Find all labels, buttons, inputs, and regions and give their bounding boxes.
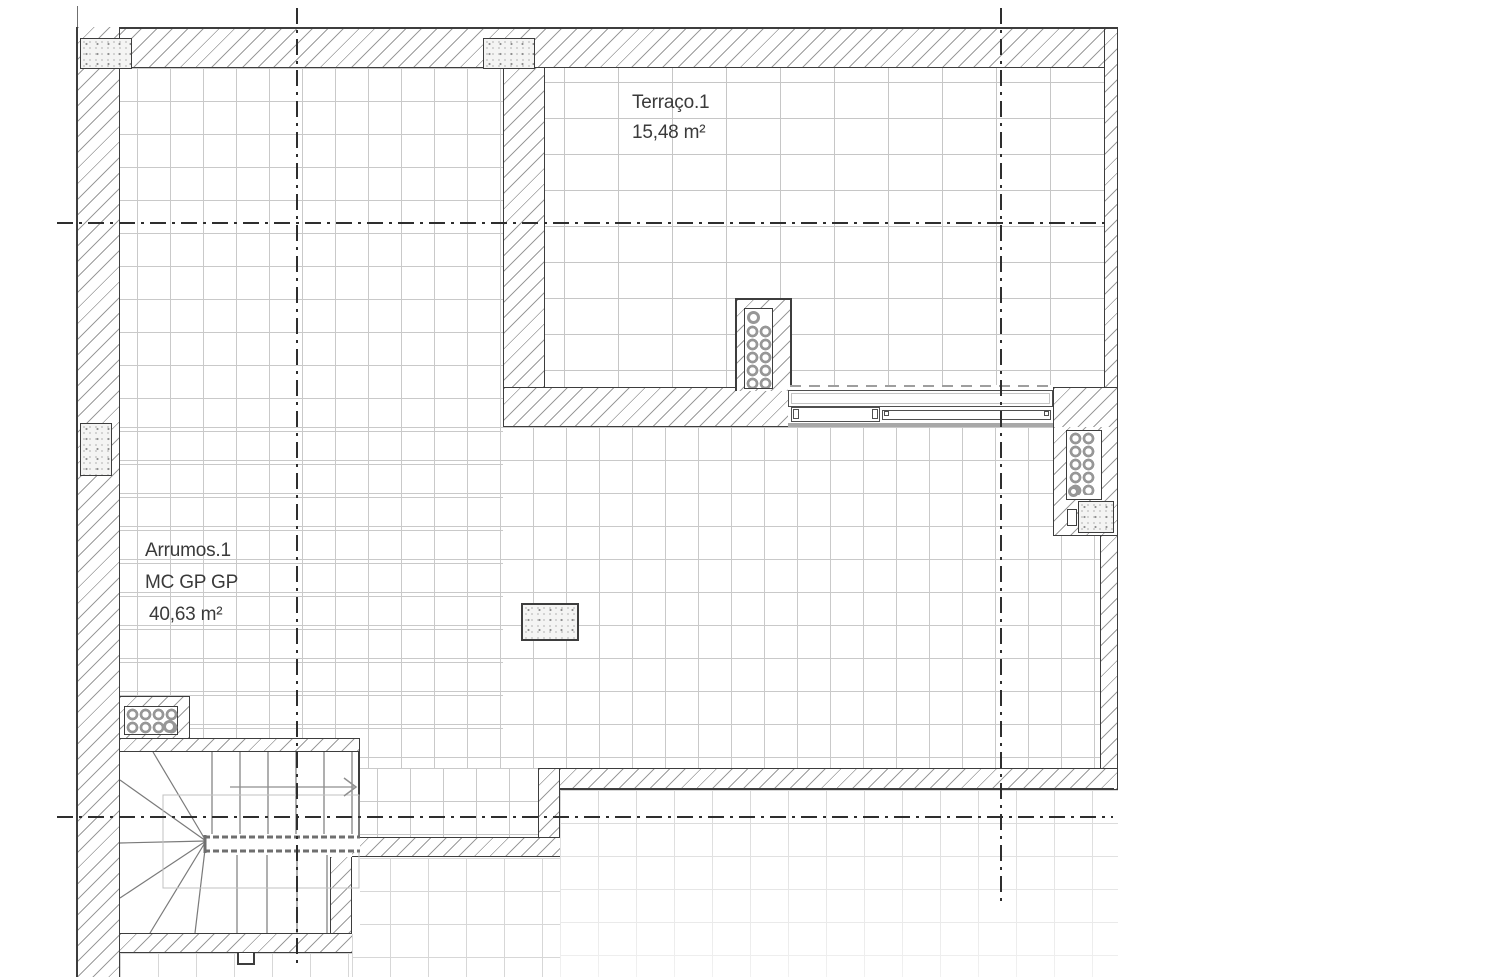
sliding-door-frame xyxy=(788,390,1053,407)
pier-left-wall xyxy=(80,423,112,476)
roof-tiles-fade-overlay xyxy=(560,790,1118,977)
roof-tiles-below-stairs-right xyxy=(352,858,560,977)
wall-right-upper xyxy=(1104,29,1118,387)
pillar-free-standing xyxy=(521,603,579,641)
room-label-terraco-area: 15,48 m² xyxy=(632,122,705,144)
centerline-vertical-2 xyxy=(1000,8,1002,905)
wall-top xyxy=(76,27,1118,68)
wall-right-lower xyxy=(1100,536,1118,768)
wall-band-bottom-edge-line xyxy=(560,788,1114,790)
pier-top-middle xyxy=(483,38,535,69)
wall-stair-top xyxy=(120,738,360,752)
sliding-door-dashed-line xyxy=(790,385,1051,387)
wall-band-south-lower xyxy=(352,837,560,857)
section-tick-line xyxy=(77,6,78,27)
pier-top-left xyxy=(80,38,132,69)
pipe-ring-extra-stairs xyxy=(163,720,176,733)
room-label-arrumos-code: MC GP GP xyxy=(145,572,238,594)
panel-cap-icon xyxy=(872,409,878,419)
centerline-vertical-1 xyxy=(296,8,298,968)
sliding-door-panel-right xyxy=(882,410,1051,420)
room-label-terraco-name: Terraço.1 xyxy=(632,92,709,114)
wall-terraco-bottom xyxy=(503,387,788,427)
wall-stair-bottom xyxy=(120,933,352,953)
panel-cap-icon xyxy=(793,409,799,419)
pipe-ring-small-right xyxy=(1068,486,1079,497)
wall-left xyxy=(76,27,120,977)
panel-cap-icon xyxy=(884,411,889,416)
panel-cap-icon xyxy=(1044,411,1049,416)
right-wall-door-leaf xyxy=(1067,509,1077,526)
floor-tiles-arrumos-main xyxy=(120,427,1100,768)
sliding-door-panel-left xyxy=(791,407,880,422)
centerline-horizontal-1 xyxy=(57,222,1110,224)
pier-right-wall xyxy=(1078,501,1114,533)
pipe-bundle-terraco xyxy=(746,325,772,388)
room-label-arrumos-name: Arrumos.1 xyxy=(145,540,231,562)
sliding-door-sill xyxy=(788,423,1053,427)
floor-tiles-terraco xyxy=(545,68,1104,387)
floor-tiles-arrumos-south xyxy=(360,768,538,837)
wall-band-south-upper xyxy=(560,768,1118,790)
wall-terraco-left xyxy=(503,68,545,427)
wall-door-right-jamb xyxy=(1053,387,1118,427)
staircase xyxy=(120,752,360,934)
room-label-arrumos-area: 40,63 m² xyxy=(149,604,222,626)
centerline-horizontal-2 xyxy=(57,816,1113,818)
pipe-ring-single-terraco xyxy=(747,311,760,324)
stair-bottom-notch xyxy=(237,953,255,965)
sliding-door xyxy=(788,385,1053,427)
roof-tiles-below-stairs xyxy=(120,953,352,977)
floor-plan: Terraço.1 15,48 m² Arrumos.1 MC GP GP 40… xyxy=(0,0,1500,977)
